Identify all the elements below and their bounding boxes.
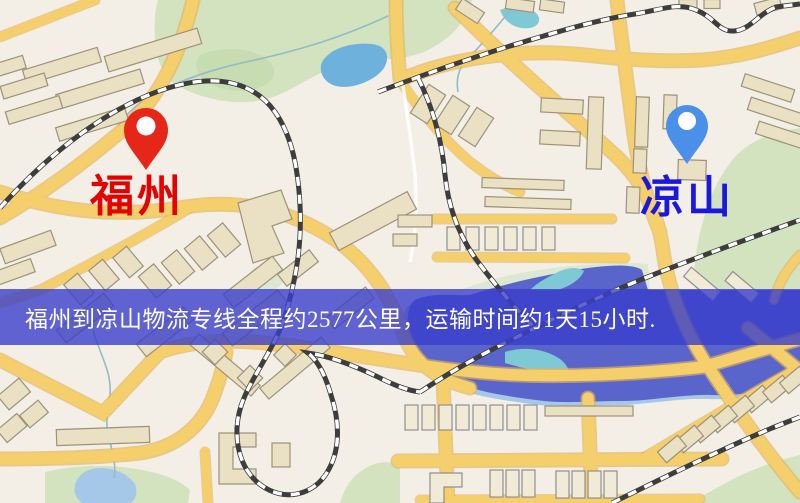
park-area [340,462,400,503]
destination-city-label: 凉山 [640,176,734,220]
origin-city-label: 福州 [90,175,184,219]
destination-map-pin-icon [666,105,708,164]
map-canvas: 福州 凉山 福州到凉山物流专线全程约2577公里，运输时间约1天15小时. [0,0,800,503]
map-artwork [0,0,800,503]
route-info-banner: 福州到凉山物流专线全程约2577公里，运输时间约1天15小时. [0,289,800,345]
route-info-text: 福州到凉山物流专线全程约2577公里，运输时间约1天15小时. [0,300,656,334]
origin-map-pin-icon [124,108,168,170]
